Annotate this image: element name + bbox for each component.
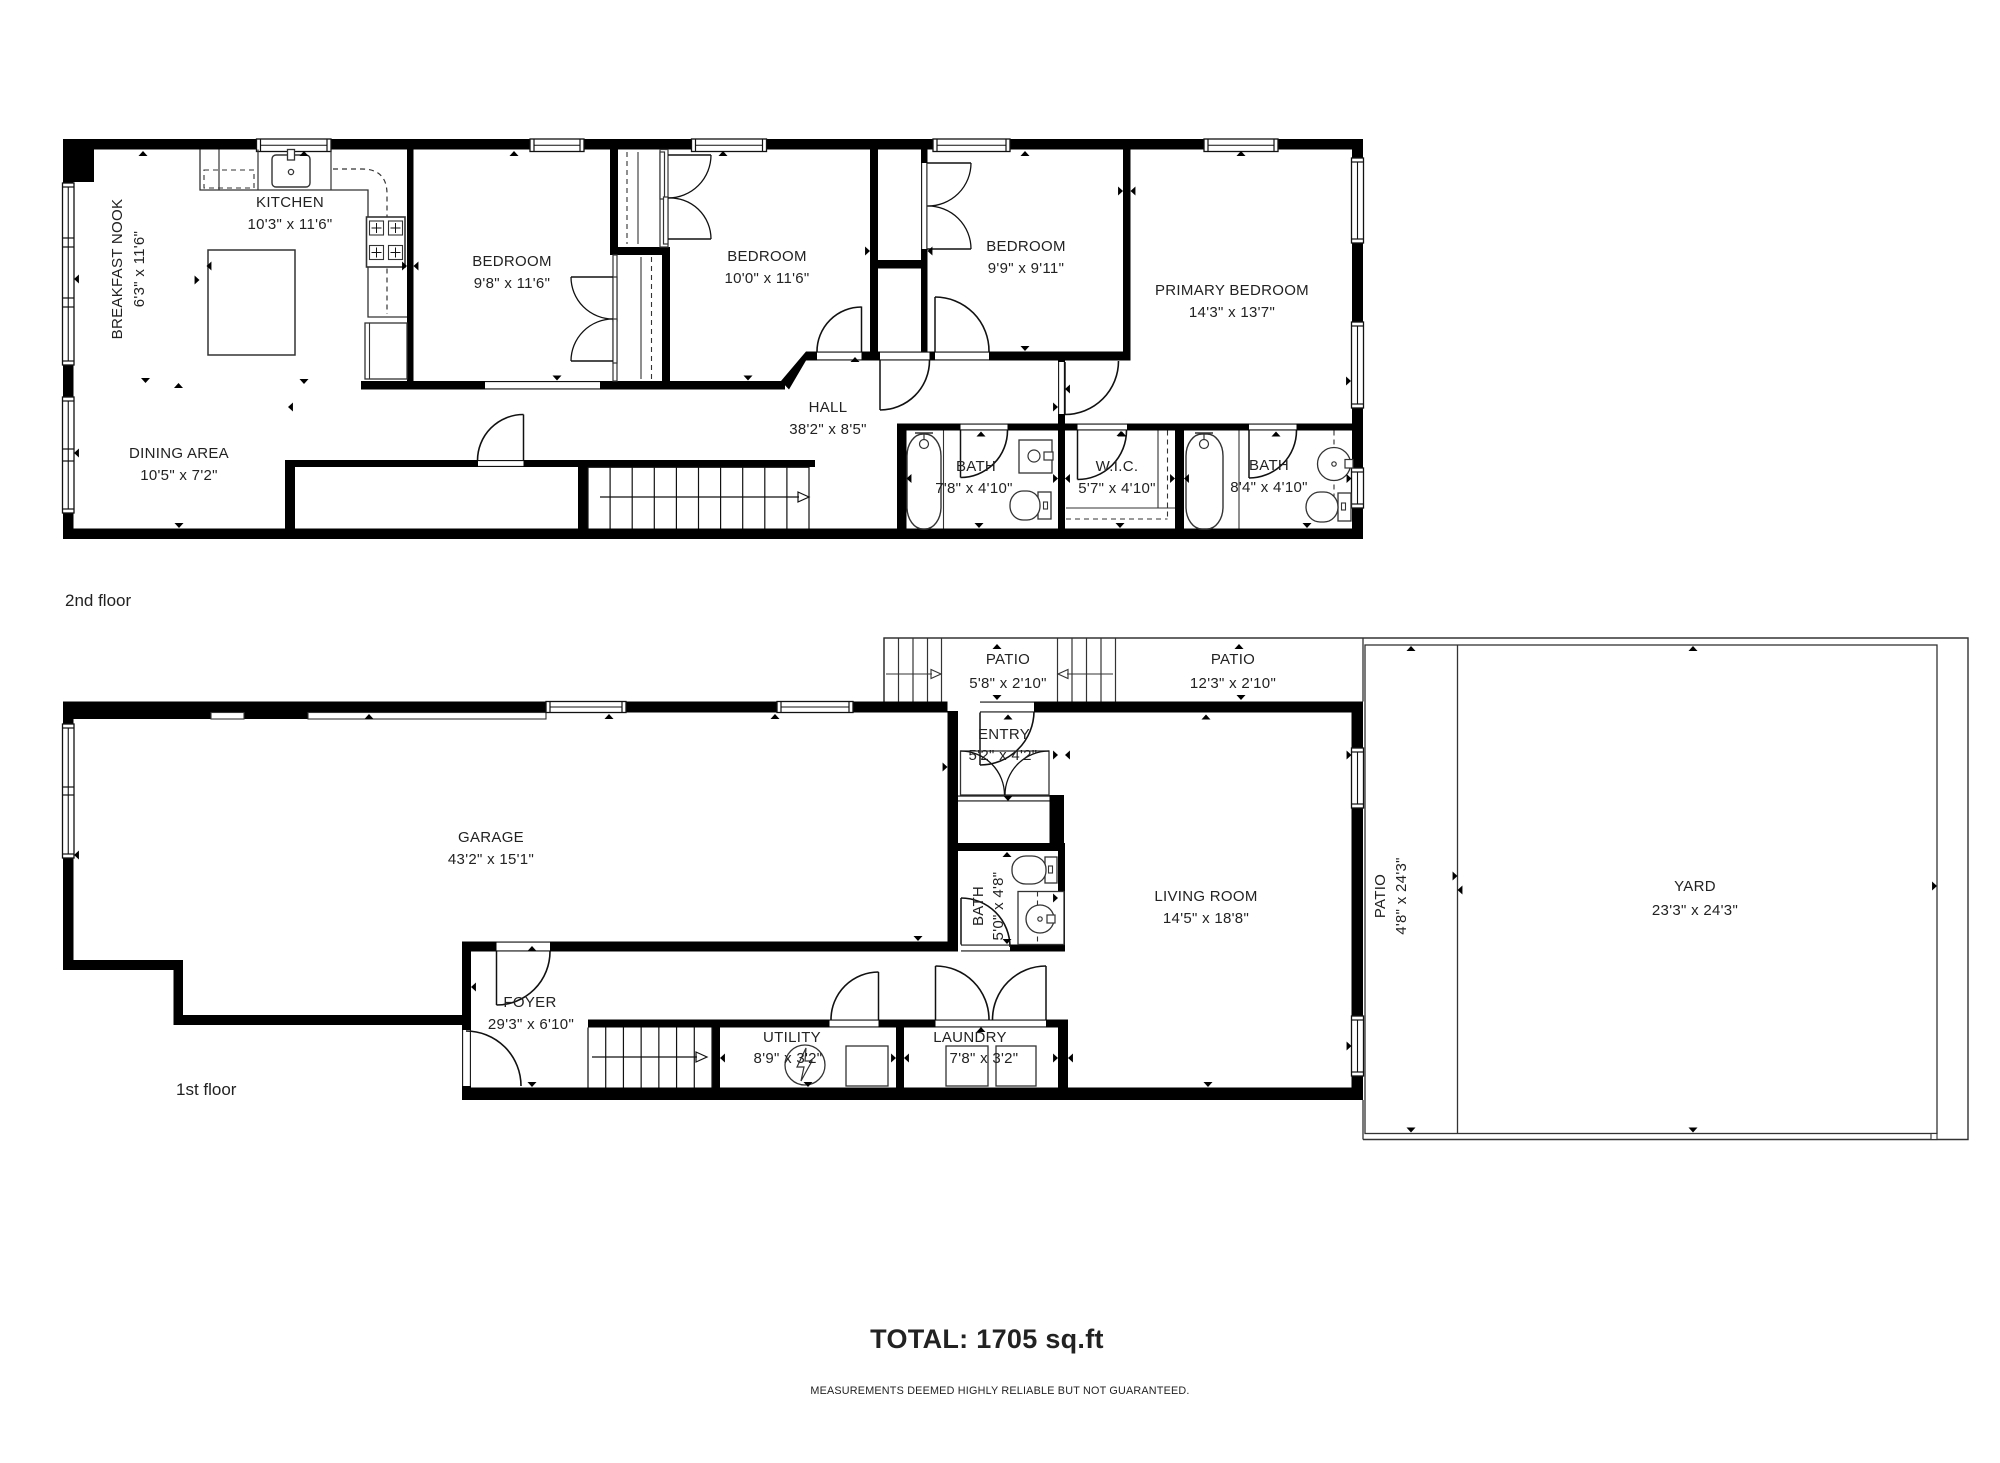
- svg-text:10'3" x 11'6": 10'3" x 11'6": [247, 216, 332, 233]
- svg-text:YARD: YARD: [1674, 878, 1716, 895]
- svg-text:8'9" x 3'2": 8'9" x 3'2": [754, 1050, 823, 1067]
- svg-text:10'5" x 7'2": 10'5" x 7'2": [140, 467, 218, 484]
- svg-text:38'2" x 8'5": 38'2" x 8'5": [789, 421, 867, 438]
- svg-text:HALL: HALL: [809, 399, 848, 416]
- svg-text:BATH: BATH: [956, 458, 996, 475]
- svg-text:DINING AREA: DINING AREA: [129, 445, 229, 462]
- svg-text:5'7" x 4'10": 5'7" x 4'10": [1078, 480, 1156, 497]
- svg-text:W.I.C.: W.I.C.: [1096, 458, 1139, 475]
- svg-text:5'0" x 4'8": 5'0" x 4'8": [990, 872, 1007, 941]
- svg-text:LIVING ROOM: LIVING ROOM: [1154, 888, 1257, 905]
- svg-text:GARAGE: GARAGE: [458, 829, 524, 846]
- svg-text:9'9" x 9'11": 9'9" x 9'11": [988, 260, 1064, 277]
- svg-text:7'8" x 4'10": 7'8" x 4'10": [935, 480, 1013, 497]
- svg-text:FOYER: FOYER: [503, 994, 556, 1011]
- svg-text:ENTRY: ENTRY: [978, 726, 1030, 743]
- svg-text:2nd floor: 2nd floor: [65, 591, 131, 610]
- svg-text:5'8" x 2'10": 5'8" x 2'10": [969, 675, 1047, 692]
- svg-text:LAUNDRY: LAUNDRY: [933, 1029, 1007, 1046]
- svg-text:PRIMARY BEDROOM: PRIMARY BEDROOM: [1155, 282, 1309, 299]
- svg-text:1st floor: 1st floor: [176, 1080, 237, 1099]
- svg-text:6'3" x 11'6": 6'3" x 11'6": [131, 231, 148, 307]
- svg-text:TOTAL: 1705 sq.ft: TOTAL: 1705 sq.ft: [870, 1324, 1104, 1354]
- svg-text:KITCHEN: KITCHEN: [256, 194, 324, 211]
- svg-text:14'3" x 13'7": 14'3" x 13'7": [1189, 304, 1275, 321]
- svg-text:12'3" x 2'10": 12'3" x 2'10": [1190, 675, 1276, 692]
- svg-text:4'8" x 24'3": 4'8" x 24'3": [1393, 857, 1410, 935]
- svg-text:BATH: BATH: [970, 886, 987, 926]
- svg-text:BEDROOM: BEDROOM: [986, 238, 1066, 255]
- svg-text:PATIO: PATIO: [1211, 651, 1255, 668]
- svg-text:29'3" x 6'10": 29'3" x 6'10": [488, 1016, 574, 1033]
- svg-text:43'2" x 15'1": 43'2" x 15'1": [448, 851, 534, 868]
- svg-text:8'4" x 4'10": 8'4" x 4'10": [1230, 479, 1308, 496]
- svg-text:PATIO: PATIO: [986, 651, 1030, 668]
- svg-text:7'8" x 3'2": 7'8" x 3'2": [950, 1050, 1019, 1067]
- svg-text:BEDROOM: BEDROOM: [727, 248, 807, 265]
- svg-text:BREAKFAST NOOK: BREAKFAST NOOK: [109, 199, 126, 340]
- svg-text:BATH: BATH: [1249, 457, 1289, 474]
- svg-text:14'5" x 18'8": 14'5" x 18'8": [1163, 910, 1249, 927]
- svg-text:MEASUREMENTS DEEMED HIGHLY REL: MEASUREMENTS DEEMED HIGHLY RELIABLE BUT …: [810, 1385, 1189, 1397]
- svg-text:10'0" x 11'6": 10'0" x 11'6": [724, 270, 809, 287]
- svg-text:UTILITY: UTILITY: [763, 1029, 821, 1046]
- svg-text:5'2" x 4'2": 5'2" x 4'2": [969, 747, 1038, 764]
- svg-text:23'3" x 24'3": 23'3" x 24'3": [1652, 902, 1738, 919]
- svg-text:PATIO: PATIO: [1372, 874, 1389, 918]
- svg-text:BEDROOM: BEDROOM: [472, 253, 552, 270]
- svg-text:9'8" x 11'6": 9'8" x 11'6": [474, 275, 550, 292]
